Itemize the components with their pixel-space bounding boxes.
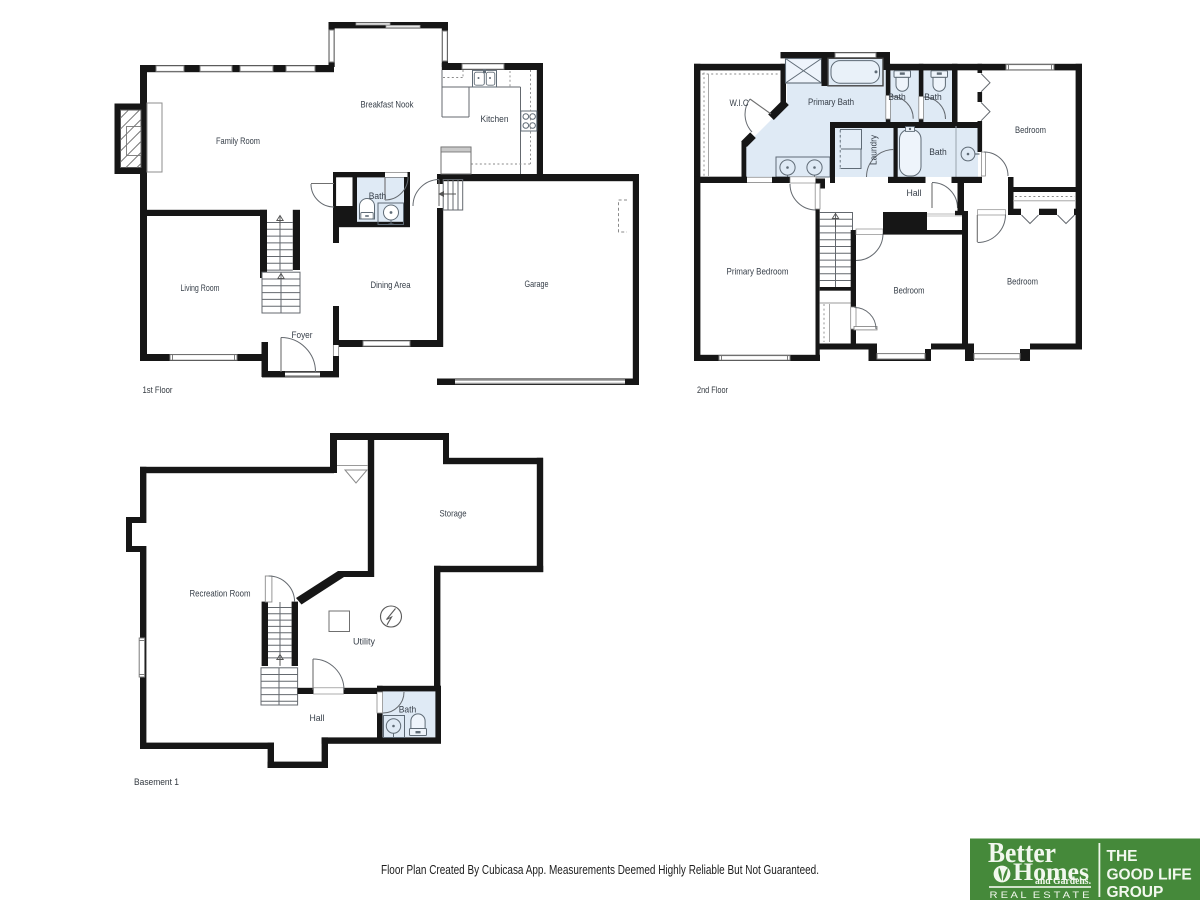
svg-text:Utility: Utility [353, 637, 375, 647]
svg-text:Bath: Bath [929, 147, 947, 157]
svg-text:Family Room: Family Room [216, 136, 260, 146]
svg-text:Bedroom: Bedroom [1015, 125, 1046, 135]
svg-text:Dining Area: Dining Area [371, 280, 412, 290]
svg-text:THE: THE [1107, 848, 1138, 865]
svg-text:Garage: Garage [525, 279, 549, 289]
svg-text:Breakfast Nook: Breakfast Nook [361, 100, 414, 110]
svg-text:R E A L E S T A T E: R E A L E S T A T E [990, 890, 1090, 900]
svg-text:Basement 1: Basement 1 [134, 777, 179, 787]
svg-text:Bath: Bath [888, 92, 906, 102]
svg-text:Bath: Bath [369, 191, 387, 201]
svg-text:Hall: Hall [310, 713, 325, 723]
svg-text:Bath: Bath [399, 705, 417, 715]
svg-text:Primary Bedroom: Primary Bedroom [727, 267, 789, 277]
svg-text:Bedroom: Bedroom [894, 286, 925, 296]
svg-text:Kitchen: Kitchen [481, 114, 509, 124]
svg-text:Floor Plan Created By Cubicasa: Floor Plan Created By Cubicasa App. Meas… [381, 863, 819, 877]
svg-text:Primary Bath: Primary Bath [808, 97, 854, 107]
svg-text:Living Room: Living Room [181, 283, 220, 293]
svg-text:Bedroom: Bedroom [1007, 277, 1038, 287]
svg-text:Bath: Bath [924, 92, 942, 102]
svg-text:and Gardens.: and Gardens. [1035, 876, 1091, 887]
svg-text:Foyer: Foyer [292, 330, 313, 340]
svg-text:GOOD LIFE: GOOD LIFE [1107, 867, 1192, 884]
svg-text:Hall: Hall [907, 188, 922, 198]
svg-text:Recreation Room: Recreation Room [190, 589, 251, 599]
svg-text:Laundry: Laundry [869, 135, 879, 165]
svg-text:GROUP: GROUP [1107, 884, 1164, 900]
svg-text:Storage: Storage [440, 509, 467, 519]
svg-text:W.I.C: W.I.C [730, 98, 749, 108]
svg-text:1st Floor: 1st Floor [143, 385, 173, 395]
svg-text:2nd Floor: 2nd Floor [697, 385, 728, 395]
